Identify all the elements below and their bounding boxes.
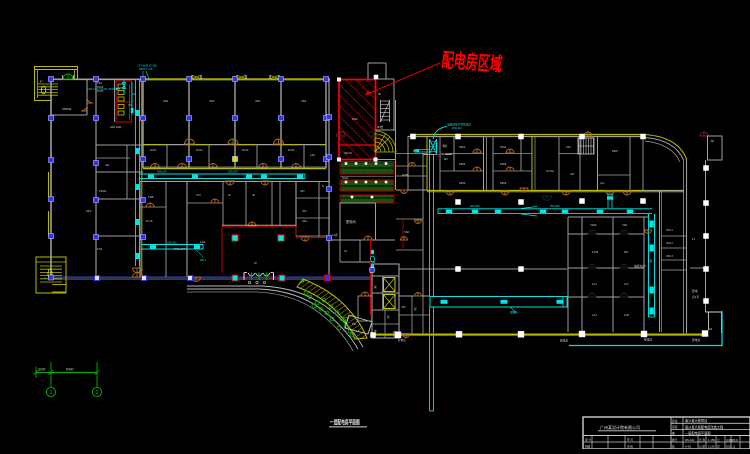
- svg-text:1F04: 1F04: [196, 148, 203, 152]
- svg-text:1道: 1道: [648, 259, 652, 263]
- svg-text:1A8: 1A8: [624, 313, 629, 317]
- svg-text:44T: 44T: [300, 189, 305, 193]
- svg-text:电缆桥架引至配电房: 电缆桥架引至配电房: [447, 123, 471, 127]
- svg-text:ADLS00: ADLS00: [110, 125, 122, 129]
- svg-text:PG21: PG21: [342, 177, 349, 180]
- svg-text:制图: 制图: [585, 444, 591, 448]
- svg-text:Fhd: Fhd: [97, 247, 103, 251]
- svg-text:1B03: 1B03: [459, 181, 466, 185]
- svg-text:建设: 建设: [672, 419, 678, 423]
- svg-text:A6: A6: [709, 327, 713, 331]
- svg-text:C25-T FC WC25: C25-T FC WC25: [87, 87, 107, 91]
- svg-text:1: 1: [49, 390, 52, 396]
- svg-text:M2: M2: [352, 322, 356, 326]
- svg-text:44: 44: [252, 193, 256, 197]
- svg-text:200x100: 200x100: [452, 127, 462, 130]
- svg-text:14G: 14G: [200, 240, 205, 244]
- svg-text:比 例: 比 例: [699, 438, 705, 442]
- svg-text:1AF: 1AF: [310, 153, 315, 157]
- svg-text:300x100: 300x100: [550, 205, 560, 208]
- svg-text:页: 页: [717, 444, 720, 448]
- svg-text:1:150: 1:150: [708, 445, 715, 449]
- svg-text:W2: W2: [624, 250, 629, 254]
- svg-text:300x100: 300x100: [470, 205, 480, 208]
- svg-text:A-05: A-05: [685, 445, 691, 449]
- svg-text:78J: 78J: [302, 209, 307, 213]
- svg-text:Ay1: Ay1: [600, 181, 605, 185]
- svg-text:1A1: 1A1: [592, 282, 597, 286]
- svg-text:日期图纸号: 日期图纸号: [726, 438, 739, 442]
- svg-text:配电房: 配电房: [692, 338, 701, 342]
- svg-text:1B02: 1B02: [459, 162, 466, 166]
- svg-text:1B05: 1B05: [500, 162, 507, 166]
- svg-text:一层配电房平面图: 一层配电房平面图: [330, 418, 360, 426]
- svg-text:VR4.3: VR4.3: [666, 255, 674, 258]
- svg-text:1F01: 1F01: [150, 148, 157, 152]
- svg-text:一层配电房平面图: 一层配电房平面图: [685, 430, 711, 435]
- svg-text:P42: P42: [566, 145, 571, 149]
- svg-text:W: W: [228, 193, 231, 197]
- svg-text:1:150: 1:150: [708, 438, 715, 442]
- svg-text:1F02: 1F02: [242, 148, 249, 152]
- svg-text:MUt: MUt: [86, 209, 92, 213]
- svg-text:10YA2: 10YA2: [546, 169, 554, 173]
- svg-text:桥架: 桥架: [510, 310, 516, 315]
- svg-text:1A7: 1A7: [624, 282, 629, 286]
- svg-text:MR-1: MR-1: [200, 259, 207, 262]
- svg-text:日 期: 日 期: [699, 444, 705, 448]
- svg-text:4S4: 4S4: [301, 99, 307, 103]
- svg-text:VR4A: VR4A: [590, 223, 597, 227]
- svg-text:nfa: nfa: [105, 163, 110, 167]
- svg-text:743: 743: [196, 193, 201, 197]
- svg-text:200x100: 200x100: [167, 242, 177, 245]
- svg-text:PE2: PE2: [352, 117, 358, 121]
- svg-text:4ACZ: 4ACZ: [344, 151, 352, 155]
- svg-text:VR2: VR2: [622, 223, 628, 227]
- svg-text:M2: M2: [402, 305, 406, 309]
- svg-text:房4号: 房4号: [692, 295, 699, 299]
- svg-text:图: 图: [672, 431, 675, 435]
- svg-text:审 核: 审 核: [627, 444, 633, 448]
- svg-text:200x100: 200x100: [228, 171, 238, 174]
- svg-text:1A05: 1A05: [592, 250, 599, 254]
- svg-text:5400: 5400: [66, 368, 74, 372]
- svg-text:配电间: 配电间: [346, 219, 356, 224]
- svg-text:1B07: 1B07: [612, 149, 619, 153]
- svg-text:44A: 44A: [302, 219, 307, 223]
- svg-text:1B04: 1B04: [459, 145, 466, 149]
- svg-text:南沙某大厦项目: 南沙某大厦项目: [685, 418, 707, 423]
- svg-text:T&D: T&D: [404, 230, 409, 234]
- svg-text:1B14: 1B14: [500, 145, 507, 149]
- svg-text:配电房: 配电房: [560, 339, 569, 343]
- svg-text:2021.11: 2021.11: [726, 445, 736, 449]
- svg-text:配电房: 配电房: [644, 338, 653, 342]
- svg-text:4F: 4F: [378, 92, 382, 96]
- svg-text:4S2: 4S2: [209, 99, 215, 103]
- svg-text:图号: 图号: [672, 438, 678, 442]
- svg-text:44T: 44T: [570, 172, 575, 176]
- svg-text:1A4: 1A4: [592, 313, 597, 317]
- svg-text:3F楼: 3F楼: [377, 125, 383, 129]
- svg-text:FDA1: FDA1: [99, 189, 107, 193]
- svg-text:200x100: 200x100: [157, 171, 167, 174]
- svg-text:M2: M2: [444, 157, 448, 161]
- svg-text:配: 配: [387, 315, 390, 319]
- svg-text:广州某设计院有限公司: 广州某设计院有限公司: [600, 424, 640, 430]
- svg-text:配: 配: [414, 307, 417, 311]
- svg-text:3200: 3200: [38, 368, 46, 372]
- svg-text:1F03: 1F03: [288, 148, 295, 152]
- svg-text:VR4.2: VR4.2: [666, 242, 674, 245]
- svg-text:设 计: 设 计: [585, 438, 591, 442]
- svg-text:项目: 项目: [672, 425, 678, 429]
- svg-text:消防: 消防: [442, 144, 448, 148]
- svg-text:T&B: T&B: [148, 195, 154, 199]
- svg-text:WDZ-YJ 25: WDZ-YJ 25: [139, 67, 153, 71]
- svg-text:1B06: 1B06: [500, 181, 507, 185]
- svg-text:日: 日: [717, 439, 720, 442]
- svg-text:4S3: 4S3: [255, 99, 261, 103]
- svg-text:南沙某大厦配电房改造工程: 南沙某大厦配电房改造工程: [685, 424, 724, 429]
- svg-text:2: 2: [95, 390, 98, 396]
- svg-text:械: 械: [374, 285, 377, 289]
- svg-text:4S1: 4S1: [163, 99, 169, 103]
- svg-text:配电房: 配电房: [398, 338, 406, 342]
- svg-text:N: N: [322, 184, 324, 188]
- svg-text:版: 版: [672, 444, 675, 448]
- svg-text:配电: 配电: [692, 289, 698, 293]
- svg-text:MWDE: MWDE: [62, 107, 72, 111]
- svg-text:14道: 14道: [332, 233, 338, 237]
- svg-text:YJV-3x95 SC100: YJV-3x95 SC100: [137, 64, 157, 68]
- svg-text:电缆沟尖2: 电缆沟尖2: [634, 264, 646, 268]
- svg-text:校 对: 校 对: [627, 438, 633, 442]
- svg-text:VR4.1: VR4.1: [666, 229, 674, 232]
- svg-text:DS-101: DS-101: [685, 438, 695, 442]
- svg-text:1F15: 1F15: [146, 219, 153, 223]
- svg-text:A8: A8: [711, 139, 715, 143]
